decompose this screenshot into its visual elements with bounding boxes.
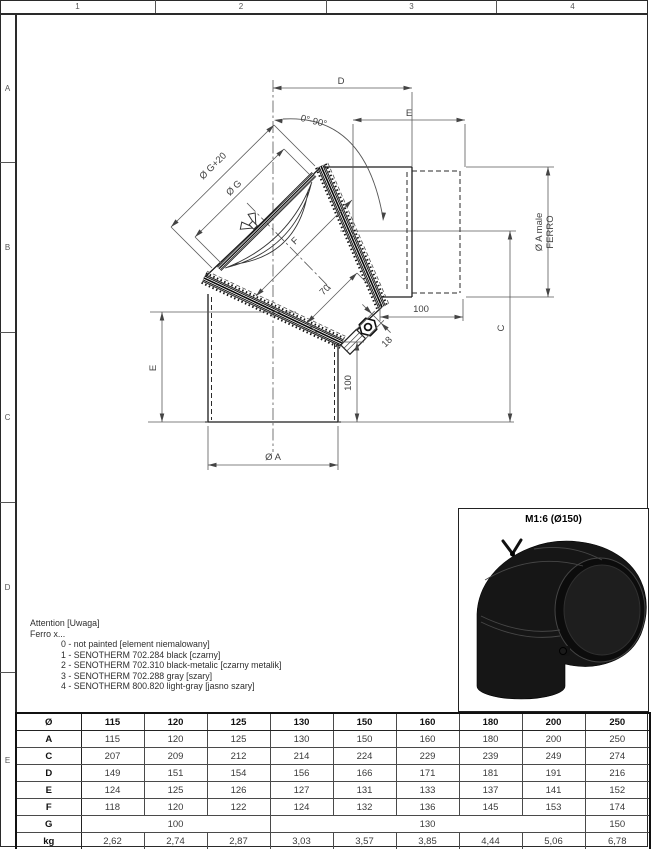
dim-label-a: Ø A: [265, 452, 282, 463]
dim-label-ferro: FERRO: [545, 215, 556, 248]
wing-nut-icon: [237, 210, 263, 236]
centerline-damper-axis: [247, 203, 331, 289]
dim-label-g20: Ø G+20: [197, 150, 228, 181]
dim-label-c: C: [496, 324, 507, 331]
dim-label-100h: 100: [413, 304, 429, 315]
dim-label-e-top: E: [406, 108, 412, 119]
dim-label-a-male: Ø A male: [534, 213, 545, 252]
dim-label-18: 18: [380, 335, 395, 350]
dim-e-top-ext: [353, 124, 465, 237]
elbow-3d-render: [477, 540, 646, 699]
clamp-screw-icon: [560, 646, 571, 656]
dim-g20-line: [171, 125, 274, 227]
dim-label-70: 70: [318, 283, 333, 298]
drawing-sheet: 1 2 3 4 A B C D E M1:6 (Ø150) Attention …: [0, 0, 656, 849]
dim-label-g: Ø G: [224, 178, 244, 198]
lock-bolt-detail: [331, 302, 393, 364]
dim-label-100v: 100: [343, 375, 354, 391]
dim-70-line: [307, 273, 357, 323]
dim-label-d: D: [338, 76, 345, 87]
upper-pipe-hidden-lines: [407, 171, 460, 293]
elbow-opening-inner: [564, 565, 640, 655]
dim-label-e-left: E: [148, 365, 159, 371]
elbow-drawing: 18 D E 0°-90° Ø G+20: [148, 76, 556, 470]
dim-label-f: F: [289, 235, 301, 247]
dim-label-angle: 0°-90°: [299, 113, 328, 130]
damper-flap: [206, 162, 333, 288]
technical-drawing: 18 D E 0°-90° Ø G+20: [0, 0, 656, 849]
